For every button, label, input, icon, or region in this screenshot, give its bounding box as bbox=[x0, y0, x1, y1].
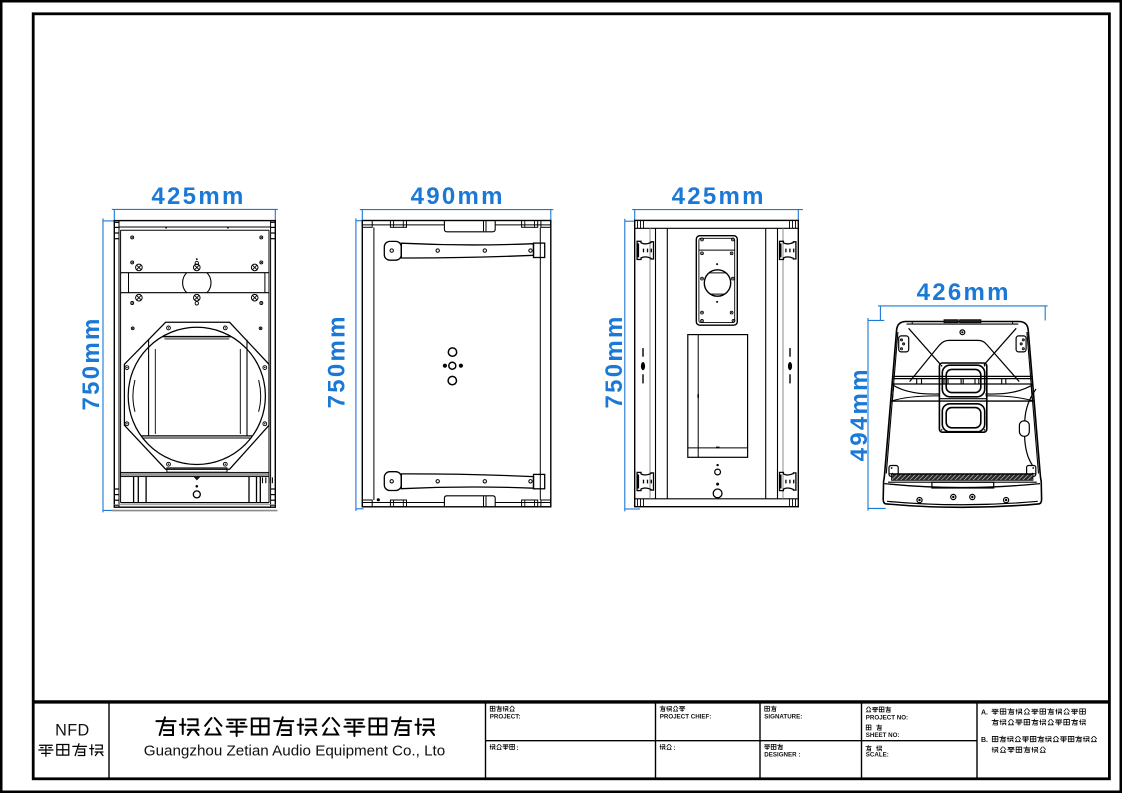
svg-text:494mm: 494mm bbox=[846, 367, 873, 461]
svg-text:NFD: NFD bbox=[55, 721, 89, 739]
svg-text:490mm: 490mm bbox=[411, 183, 505, 210]
svg-text:750mm: 750mm bbox=[323, 314, 350, 408]
svg-text::: : bbox=[517, 745, 519, 752]
svg-text:SHEET NO:: SHEET NO: bbox=[866, 732, 900, 739]
svg-text:PROJECT:: PROJECT: bbox=[490, 714, 521, 721]
svg-text:426mm: 426mm bbox=[917, 279, 1011, 306]
svg-text:SIGNATURE:: SIGNATURE: bbox=[764, 714, 802, 721]
svg-text:425mm: 425mm bbox=[672, 183, 766, 210]
svg-text:DESIGNER :: DESIGNER : bbox=[764, 751, 800, 758]
svg-text:PROJECT NO:: PROJECT NO: bbox=[866, 715, 908, 722]
svg-text:SCALE:: SCALE: bbox=[866, 752, 889, 759]
svg-text:750mm: 750mm bbox=[78, 316, 105, 410]
svg-text:425mm: 425mm bbox=[151, 183, 245, 210]
svg-text:PROJECT CHIEF:: PROJECT CHIEF: bbox=[660, 714, 712, 721]
svg-text::: : bbox=[674, 745, 676, 752]
svg-text:B.: B. bbox=[981, 737, 988, 744]
svg-text:Guangzhou Zetian Audio Equipme: Guangzhou Zetian Audio Equipment Co., Lt… bbox=[144, 743, 445, 760]
svg-text:A.: A. bbox=[981, 710, 988, 717]
svg-text:750mm: 750mm bbox=[601, 314, 628, 408]
